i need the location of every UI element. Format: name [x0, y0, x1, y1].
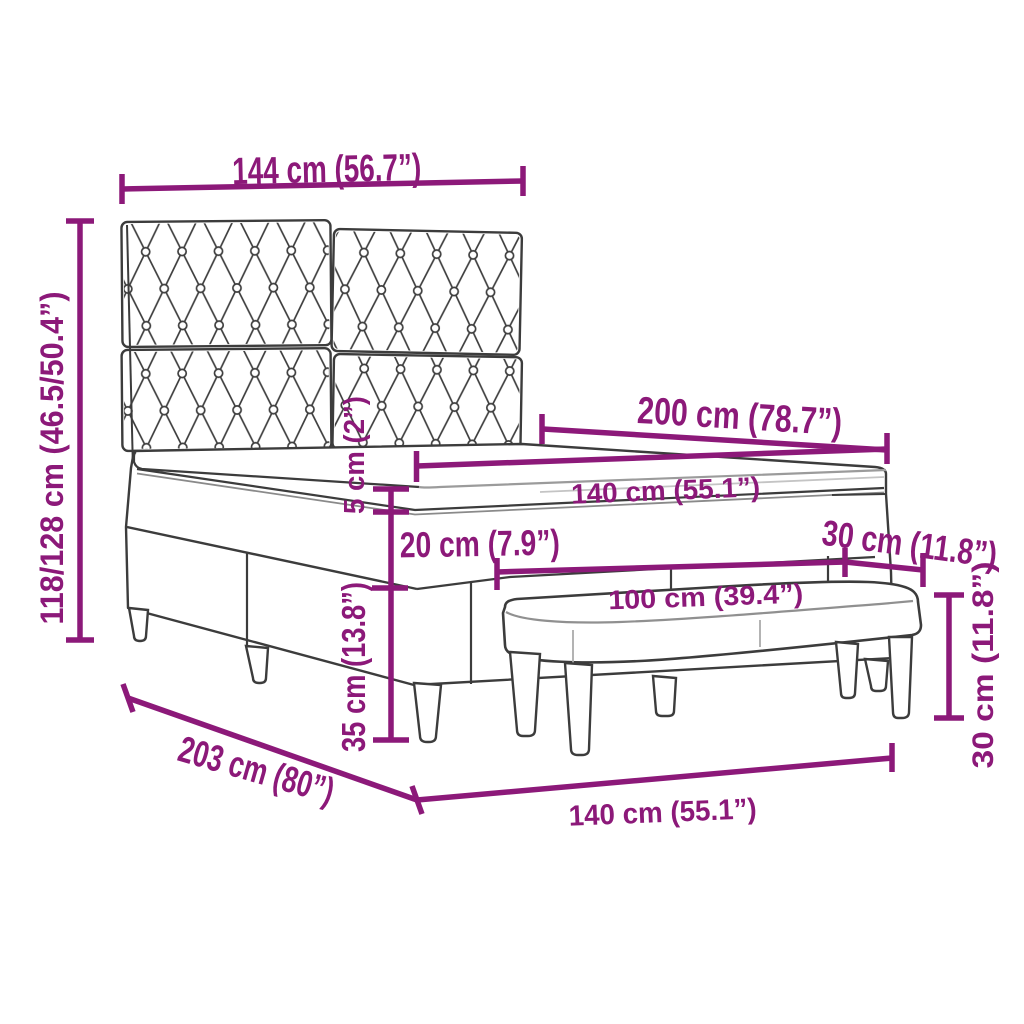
- svg-text:144 cm (56.7”): 144 cm (56.7”): [232, 147, 422, 193]
- svg-text:118/128 cm (46.5/50.4”): 118/128 cm (46.5/50.4”): [34, 292, 70, 625]
- svg-text:20 cm (7.9”): 20 cm (7.9”): [399, 522, 560, 566]
- svg-text:30 cm (11.8”): 30 cm (11.8”): [967, 562, 1000, 769]
- svg-text:5 cm (2”): 5 cm (2”): [339, 396, 371, 514]
- svg-text:35 cm (13.8”): 35 cm (13.8”): [335, 582, 372, 752]
